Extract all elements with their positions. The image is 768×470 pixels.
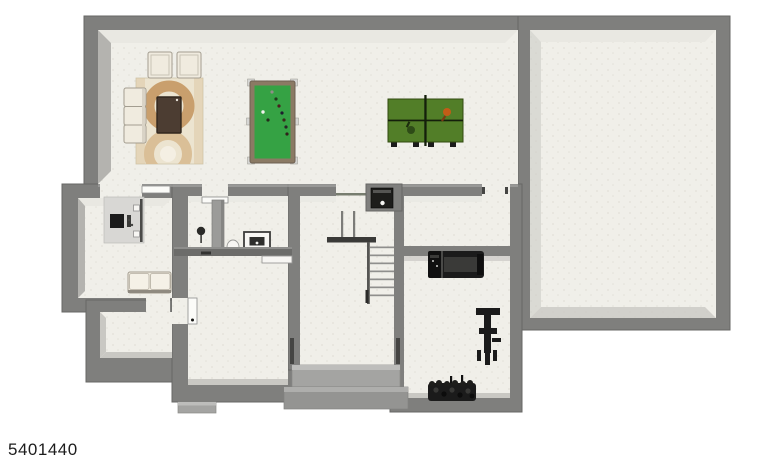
tv bbox=[110, 214, 124, 228]
sofa bbox=[124, 88, 146, 143]
room-closet-floor bbox=[100, 312, 172, 358]
door-utility-side bbox=[188, 298, 197, 324]
loveseat bbox=[128, 272, 171, 293]
room-unfinished-floor bbox=[530, 30, 716, 318]
ottoman bbox=[177, 52, 201, 78]
floor-plan-page: 5401440 bbox=[0, 0, 768, 470]
coffee-table bbox=[157, 97, 181, 133]
ottoman bbox=[148, 52, 172, 78]
desk-edge bbox=[140, 199, 143, 242]
room-utility-floor bbox=[188, 196, 288, 385]
room-storage-floor bbox=[404, 196, 510, 246]
treadmill bbox=[428, 251, 484, 278]
room-stair-hall-floor bbox=[300, 196, 394, 365]
ping-pong-table bbox=[388, 95, 463, 147]
net bbox=[424, 95, 426, 146]
door-den bbox=[142, 186, 170, 193]
furnace bbox=[366, 184, 402, 211]
shelf bbox=[262, 256, 292, 263]
listing-id: 5401440 bbox=[8, 440, 78, 460]
laundry-tub bbox=[244, 232, 270, 248]
floor-plan bbox=[0, 0, 768, 470]
pool-table bbox=[247, 79, 299, 164]
